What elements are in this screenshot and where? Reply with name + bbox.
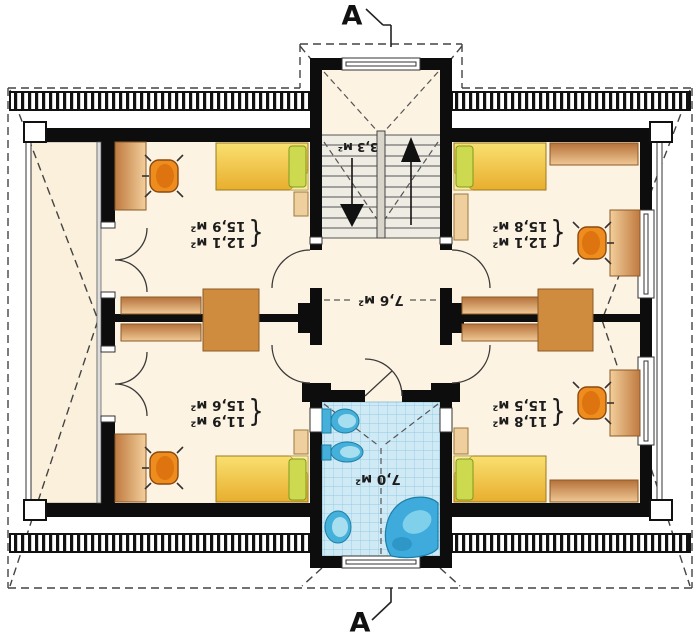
- wall-south-right: [452, 503, 652, 517]
- pillow-top-right: [456, 146, 473, 187]
- bath-wall-north-b: [402, 390, 440, 402]
- bedside-shelf-bottom-right: [454, 428, 468, 454]
- room-label-bottom-right: { 11,8 м² 15,5 м²: [492, 396, 567, 428]
- area-total: 15,9 м²: [190, 217, 245, 233]
- desk-top-right: [610, 210, 640, 276]
- knee-wall-east: [657, 142, 662, 503]
- washbasin: [325, 511, 351, 543]
- wall-north-right: [452, 128, 652, 142]
- pillow-top-left: [289, 146, 306, 187]
- toilet: [322, 409, 359, 433]
- room-label-bottom-left: { 11,9 м² 15,6 м²: [190, 396, 265, 428]
- pillow-bottom-right: [456, 459, 473, 500]
- area-brace: {: [248, 220, 263, 247]
- section-line-top: [366, 9, 391, 47]
- wall-south-left: [47, 503, 310, 517]
- bathroom-area-label: 7,0 м²: [355, 470, 401, 486]
- desk-top-left: [115, 142, 146, 210]
- wall-north-left: [47, 128, 310, 142]
- dresser-left-b: [121, 324, 201, 341]
- bath-niche-east: [440, 408, 452, 432]
- bedside-shelf-bottom-left: [294, 430, 308, 454]
- divider-stub-hall-left: [298, 303, 322, 333]
- bedside-shelf-top-left: [294, 192, 308, 216]
- section-marker-top: A: [342, 1, 363, 32]
- bath-wall-north-a: [322, 390, 365, 402]
- room-label-top-left: { 12,1 м² 15,9 м²: [190, 217, 265, 249]
- pier-se: [650, 500, 672, 520]
- dresser-right-c: [538, 289, 593, 351]
- area-total: 15,6 м²: [190, 396, 245, 412]
- area-brace: {: [550, 220, 565, 247]
- floor-plan: A A 3,3 м² 7,6 м² 7,0 м² { 12,1 м² 15,9 …: [0, 0, 700, 643]
- bidet: [322, 442, 363, 462]
- divider-stub-hall-right: [440, 303, 464, 333]
- area-floor: 12,1 м²: [190, 233, 245, 249]
- bedside-shelf-top-right: [454, 194, 468, 240]
- area-brace: {: [248, 399, 263, 426]
- floor-plan-drawing: [0, 0, 700, 643]
- bath-niche-west: [310, 408, 322, 432]
- dresser-left-c: [203, 289, 259, 351]
- area-floor: 12,1 м²: [492, 233, 547, 249]
- knee-wall-west: [26, 142, 31, 503]
- knee-wall-line-west: [97, 142, 101, 503]
- wardrobe-top-right: [550, 143, 638, 165]
- stairs-area-label: 3,3 м²: [338, 140, 379, 154]
- desk-bottom-left: [115, 434, 146, 502]
- section-line-bottom: [372, 588, 391, 620]
- pillow-bottom-left: [289, 459, 306, 500]
- desk-bottom-right: [610, 370, 640, 436]
- dresser-left-a: [121, 297, 201, 314]
- section-marker-bottom: A: [350, 608, 371, 639]
- hall-area-label: 7,6 м²: [358, 291, 404, 307]
- dresser-right-b: [462, 324, 538, 341]
- wardrobe-bottom-right: [550, 480, 638, 502]
- pier-sw: [24, 500, 46, 520]
- pier-nw: [24, 122, 46, 142]
- area-floor: 11,8 м²: [492, 412, 547, 428]
- area-brace: {: [550, 399, 565, 426]
- stair-tower-wall-east: [440, 58, 452, 250]
- area-floor: 11,9 м²: [190, 412, 245, 428]
- stair-tower-wall-west: [310, 58, 322, 250]
- area-total: 15,8 м²: [492, 217, 547, 233]
- pier-ne: [650, 122, 672, 142]
- dormer-hips-bottom: [302, 568, 460, 586]
- room-label-top-right: { 12,1 м² 15,8 м²: [492, 217, 567, 249]
- attic-storage-floor: [31, 142, 97, 503]
- dresser-right-a: [462, 297, 538, 314]
- area-total: 15,5 м²: [492, 396, 547, 412]
